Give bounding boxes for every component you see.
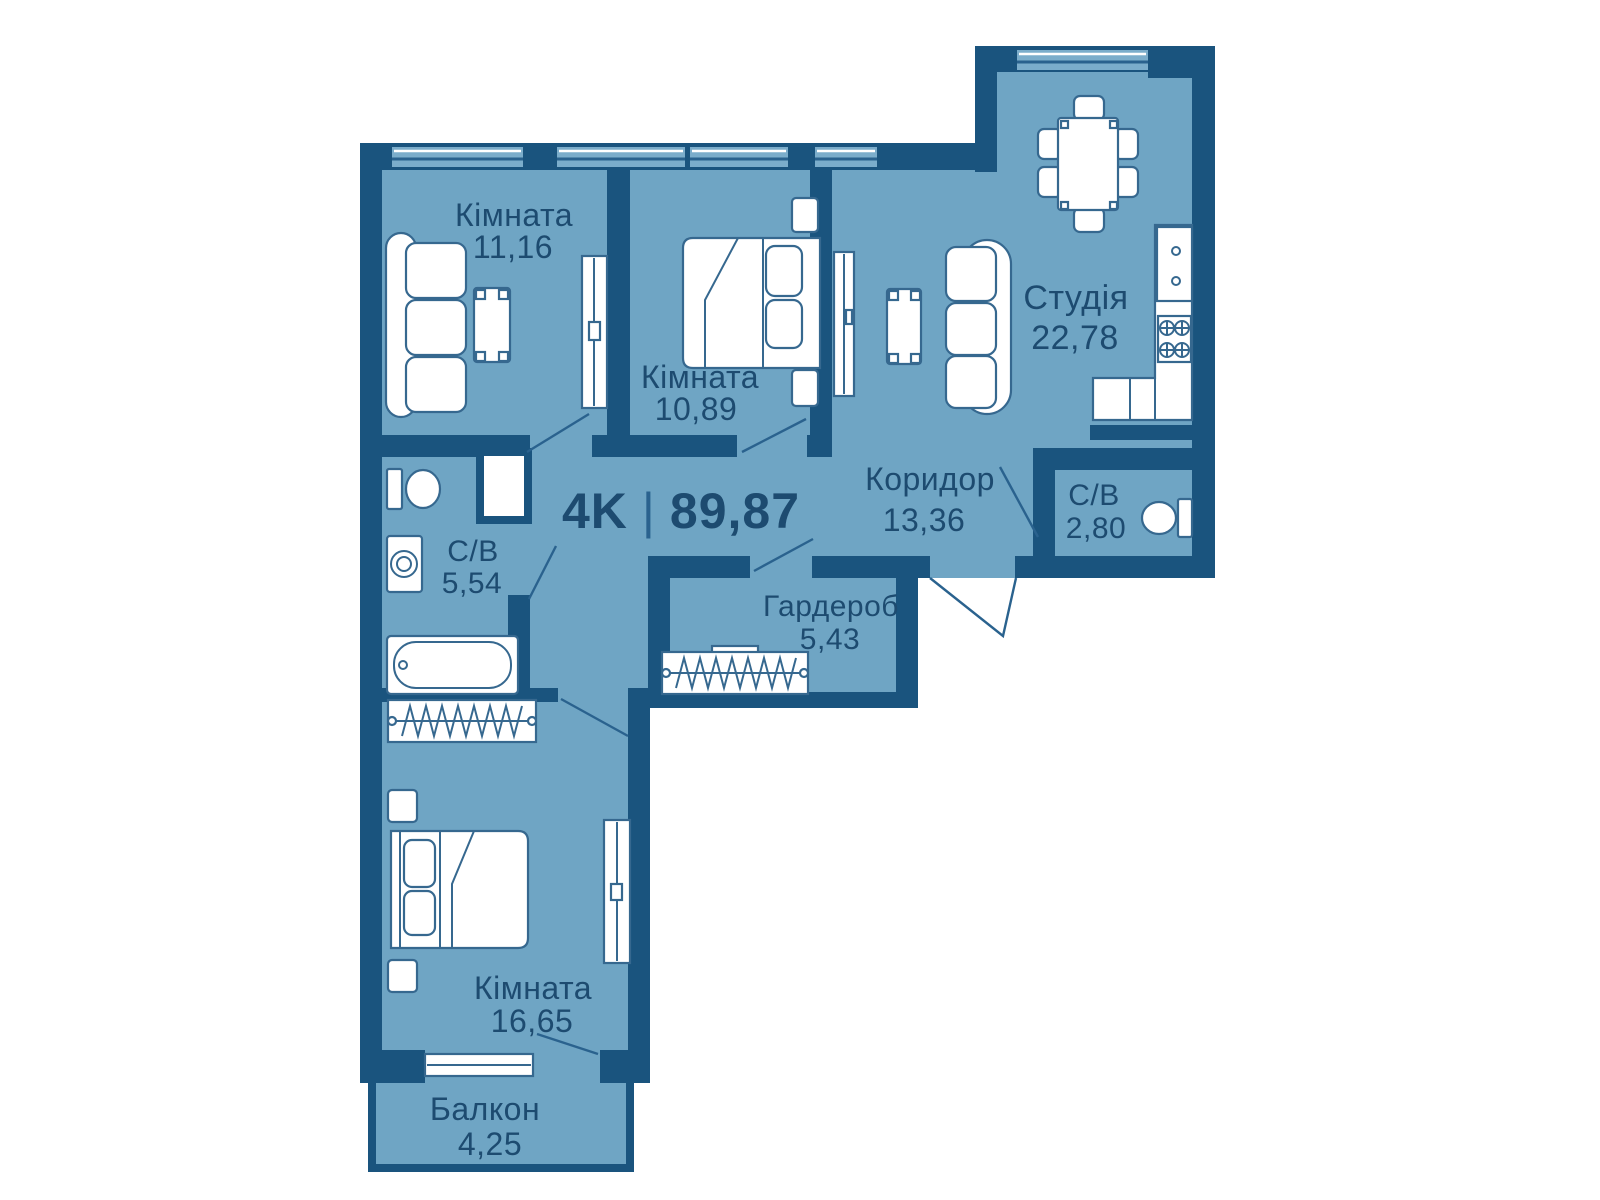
nightstand <box>388 960 417 992</box>
wardrobe-room-label: Гардероб <box>763 590 899 623</box>
room-1-label: Кімната <box>455 197 573 233</box>
dining-table <box>1058 118 1118 210</box>
toilet <box>387 469 402 509</box>
room-3-label: Кімната <box>474 970 592 1006</box>
chair <box>1074 96 1104 120</box>
pillow <box>766 300 802 348</box>
pillow <box>766 246 802 296</box>
chair <box>1074 208 1104 232</box>
nightstand <box>388 790 417 822</box>
bathroom-large-area: 5,54 <box>442 567 502 600</box>
room-2-label: Кімната <box>641 359 759 395</box>
floor-plan: Кімната 11,16 Кімната 10,89 Студія 22,78… <box>0 0 1600 1200</box>
studio-area: 22,78 <box>1031 319 1119 357</box>
bathroom-small-furniture <box>1142 499 1192 537</box>
wardrobe-room-furniture <box>662 646 808 694</box>
balcony-area: 4,25 <box>458 1126 522 1162</box>
corridor-area: 13,36 <box>883 502 966 538</box>
plan-title: 4K|89,87 <box>562 483 800 539</box>
vent-shaft <box>484 456 524 516</box>
studio-label: Студія <box>1023 279 1128 317</box>
bathroom-small-area: 2,80 <box>1066 512 1126 545</box>
nightstand <box>792 370 818 406</box>
floor-plan-page: Кімната 11,16 Кімната 10,89 Студія 22,78… <box>0 0 1600 1200</box>
pillow <box>404 891 435 935</box>
pillow <box>404 840 435 887</box>
bathroom-small-label: С/В <box>1068 479 1120 512</box>
wardrobe-room-area: 5,43 <box>800 623 860 656</box>
bathroom-large-label: С/В <box>447 535 499 568</box>
room-1-area: 11,16 <box>473 229 553 265</box>
toilet <box>1178 499 1192 537</box>
kitchen-sink <box>1157 227 1192 301</box>
room-3-area: 16,65 <box>491 1003 574 1039</box>
corridor-label: Коридор <box>865 461 995 497</box>
balcony-label: Балкон <box>430 1091 540 1127</box>
nightstand <box>792 198 818 232</box>
entrance-door <box>930 578 1016 636</box>
room-2-area: 10,89 <box>655 391 738 427</box>
